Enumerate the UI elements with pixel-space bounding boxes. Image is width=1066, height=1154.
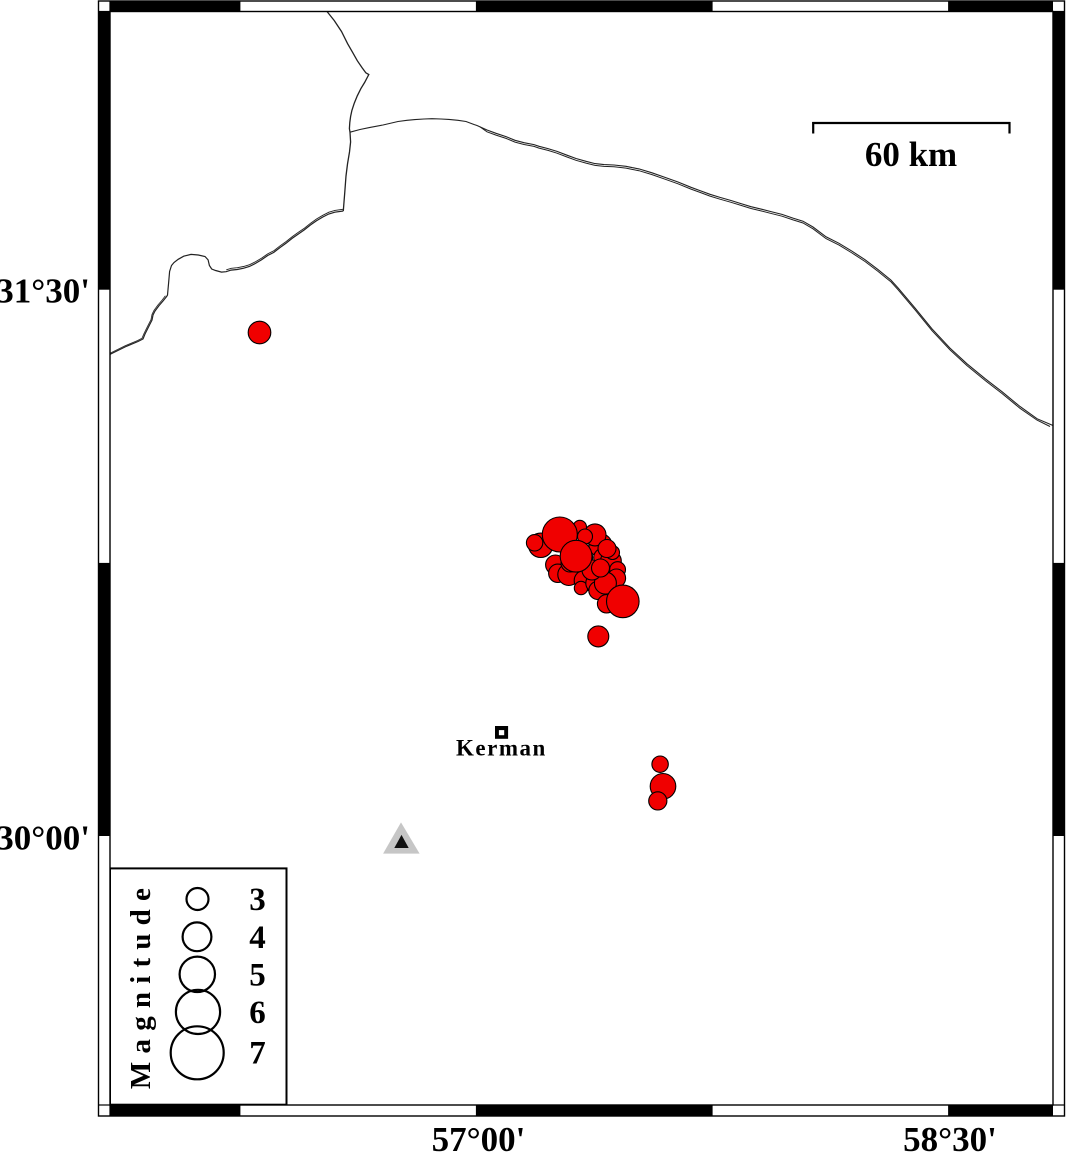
svg-text:5: 5	[249, 958, 266, 994]
svg-text:60 km: 60 km	[865, 135, 957, 174]
svg-text:7: 7	[249, 1036, 266, 1072]
svg-text:3: 3	[249, 882, 266, 918]
svg-text:6: 6	[249, 995, 266, 1031]
svg-text:30°00': 30°00'	[0, 819, 90, 858]
svg-text:Magnitude: Magnitude	[125, 880, 157, 1089]
svg-text:57°00': 57°00'	[432, 1120, 526, 1154]
svg-text:Kerman: Kerman	[456, 736, 547, 761]
svg-text:4: 4	[249, 920, 266, 956]
svg-text:58°30': 58°30'	[903, 1120, 997, 1154]
svg-text:31°30': 31°30'	[0, 272, 90, 311]
